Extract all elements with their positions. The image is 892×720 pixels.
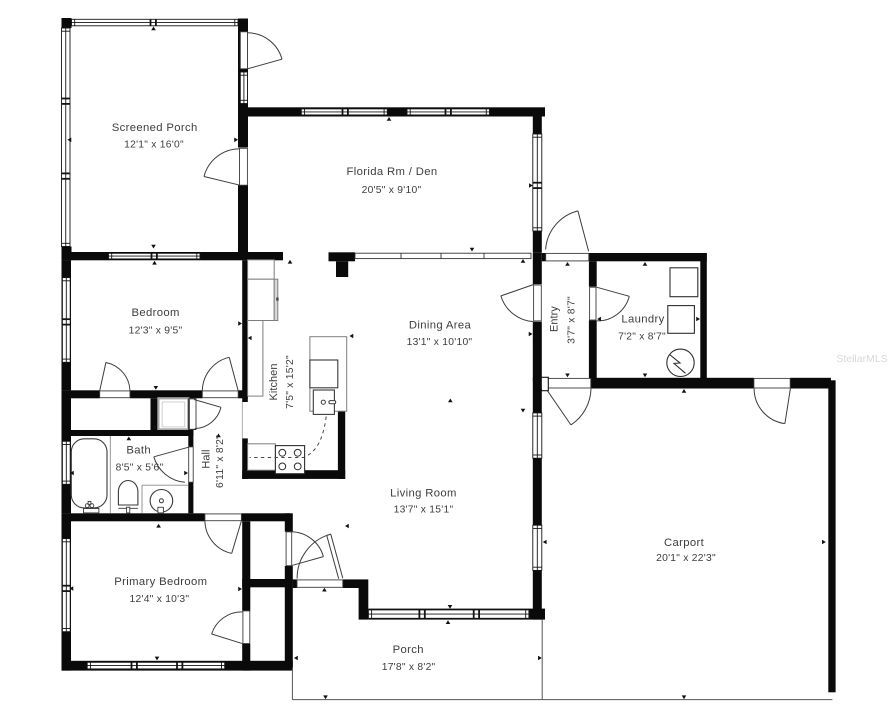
svg-text:Florida Rm / Den: Florida Rm / Den — [347, 166, 438, 178]
svg-text:8'5" x 5'6": 8'5" x 5'6" — [116, 463, 164, 474]
svg-text:12'1" x 16'0": 12'1" x 16'0" — [124, 140, 184, 151]
svg-text:Kitchen: Kitchen — [268, 363, 280, 400]
svg-text:20'1" x 22'3": 20'1" x 22'3" — [656, 553, 716, 564]
svg-text:3'7" x 8'7": 3'7" x 8'7" — [567, 296, 578, 344]
svg-text:12'4" x 10'3": 12'4" x 10'3" — [130, 594, 190, 605]
svg-text:Carport: Carport — [664, 537, 705, 549]
svg-text:Bedroom: Bedroom — [131, 307, 179, 319]
svg-text:Dining Area: Dining Area — [409, 320, 472, 332]
svg-text:Entry: Entry — [549, 306, 561, 332]
svg-text:Hall: Hall — [201, 449, 213, 468]
svg-text:20'5" x 9'10": 20'5" x 9'10" — [362, 185, 422, 196]
svg-text:Screened Porch: Screened Porch — [112, 122, 198, 134]
svg-text:StellarMLS: StellarMLS — [836, 353, 887, 365]
svg-text:Bath: Bath — [126, 445, 151, 457]
svg-text:17'8" x 8'2": 17'8" x 8'2" — [382, 662, 436, 673]
svg-text:6'11" x 8'2": 6'11" x 8'2" — [215, 435, 226, 488]
svg-text:Primary Bedroom: Primary Bedroom — [114, 576, 207, 588]
svg-text:13'1" x 10'10": 13'1" x 10'10" — [407, 337, 473, 348]
svg-text:7'2" x 8'7": 7'2" x 8'7" — [618, 332, 666, 343]
svg-text:13'7" x 15'1": 13'7" x 15'1" — [394, 505, 454, 516]
svg-text:Porch: Porch — [393, 644, 424, 656]
svg-text:12'3" x 9'5": 12'3" x 9'5" — [129, 326, 183, 337]
svg-text:Living Room: Living Room — [390, 488, 457, 500]
svg-text:Laundry: Laundry — [621, 314, 664, 326]
svg-text:7'5" x 15'2": 7'5" x 15'2" — [285, 355, 296, 409]
